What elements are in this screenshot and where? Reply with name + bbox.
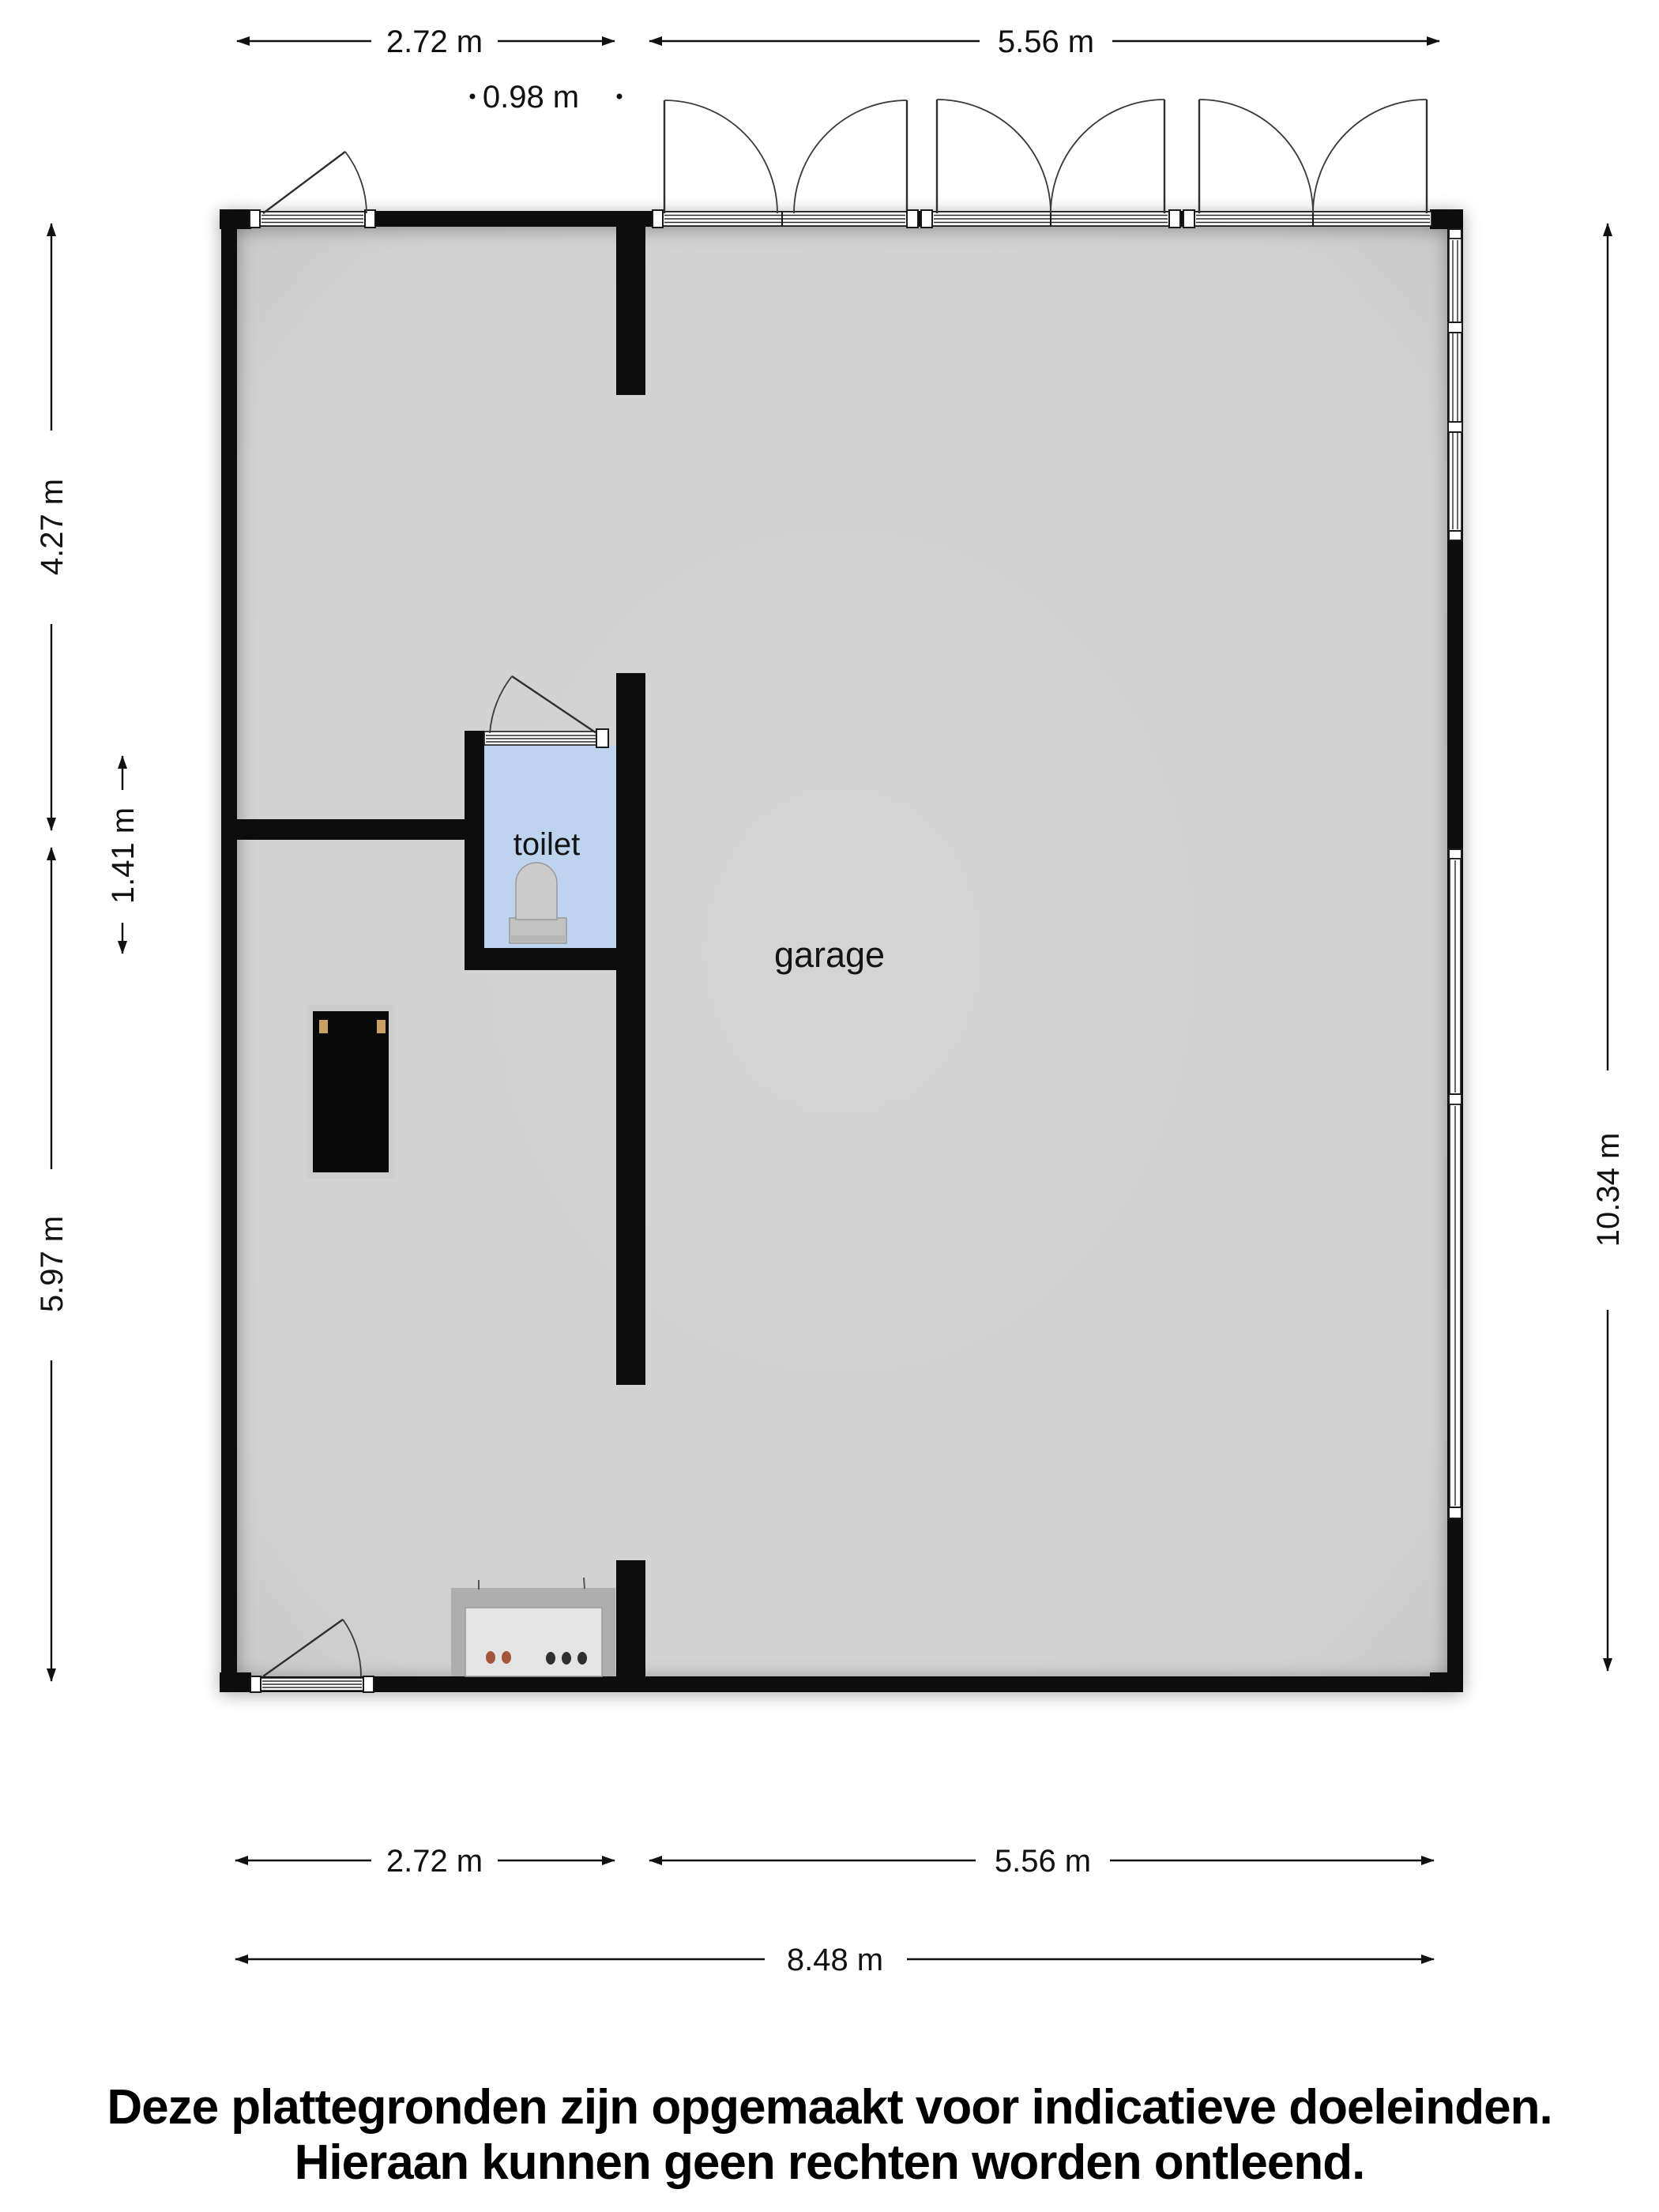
- wall-bottom: [221, 1676, 1461, 1692]
- door-post: [250, 210, 260, 228]
- left-partition-wall: [234, 819, 486, 840]
- dimension-bottom-right: 5.56 m: [649, 1844, 1434, 1879]
- window-post: [1449, 531, 1461, 540]
- room-label-toilet: toilet: [513, 827, 581, 862]
- mid-wall-upper-segment: [616, 227, 645, 395]
- dim-left-upper-label: 4.27 m: [35, 479, 70, 575]
- disclaimer: Deze plattegronden zijn opgemaakt voor i…: [107, 2080, 1552, 2190]
- dim-left-mid-label: 1.41 m: [106, 807, 141, 904]
- toilet-door-post: [596, 729, 608, 747]
- counter-tick: [584, 1578, 585, 1589]
- dim-top-right-label: 5.56 m: [998, 24, 1094, 59]
- window-transom: [1449, 1094, 1461, 1104]
- dimension-left-mid: 1.41 m: [106, 756, 141, 954]
- window-narrow-upper: [1450, 859, 1461, 1094]
- cabinet-body: [313, 1011, 389, 1172]
- door-swing-arc: [937, 100, 1051, 213]
- door-swing-arc: [1313, 100, 1427, 213]
- window-post: [1449, 229, 1461, 239]
- counter-knob-warm: [486, 1651, 495, 1664]
- counter-door-panel: [465, 1608, 602, 1676]
- counter-knob-dark: [546, 1652, 555, 1665]
- door-swing-arc: [1051, 100, 1164, 213]
- cabinet: [307, 1005, 395, 1179]
- counter-knob-dark: [577, 1652, 587, 1665]
- corner-top-right: [1430, 209, 1463, 229]
- door-post: [653, 210, 663, 228]
- door-post: [907, 210, 918, 228]
- counter-unit: [451, 1578, 615, 1676]
- toilet-bottom-wall: [465, 948, 645, 970]
- dim-bottom-left-label: 2.72 m: [386, 1844, 483, 1879]
- dim-top-small-label: 0.98 m: [483, 80, 579, 115]
- window-transom: [1448, 322, 1462, 333]
- corner-top-left: [220, 209, 251, 229]
- counter-knob-warm: [502, 1651, 511, 1664]
- dimension-left-upper: 4.27 m: [35, 224, 70, 830]
- cabinet-handle: [319, 1020, 328, 1033]
- dim-top-left-label: 2.72 m: [386, 24, 483, 59]
- toilet-left-wall: [465, 731, 484, 970]
- door-swing-arc: [664, 100, 777, 213]
- dimension-bottom-left: 2.72 m: [235, 1844, 615, 1879]
- entry-door-swing-arc: [345, 152, 367, 213]
- garage-door-3: [1169, 100, 1431, 228]
- mid-wall-lower-segment: [616, 1560, 645, 1679]
- garage-door-2: [907, 100, 1169, 228]
- dim-dot: [617, 94, 623, 100]
- door-post: [1169, 210, 1180, 228]
- window-large: [1448, 239, 1462, 531]
- cabinet-handle: [377, 1020, 386, 1033]
- window-transom: [1448, 422, 1462, 432]
- toilet-bowl: [516, 863, 557, 920]
- dimension-top-left: 2.72 m: [237, 24, 615, 59]
- dim-right-label: 10.34 m: [1591, 1133, 1626, 1247]
- floorplan-canvas: toilet: [0, 0, 1659, 2212]
- toilet-base-shadow: [511, 935, 565, 942]
- entry-door-leaf: [263, 152, 345, 213]
- dim-left-lower-label: 5.97 m: [35, 1216, 70, 1312]
- dim-dot: [470, 94, 476, 100]
- door-post: [921, 210, 932, 228]
- door-post: [250, 1676, 261, 1692]
- dimension-top-right: 5.56 m: [649, 24, 1439, 59]
- corner-bottom-right: [1430, 1672, 1463, 1692]
- window-post: [1449, 849, 1461, 859]
- window-narrow-lower: [1450, 1104, 1461, 1507]
- room-label-garage: garage: [774, 935, 885, 975]
- window-post: [1449, 1507, 1461, 1518]
- wall-left: [221, 211, 237, 1692]
- door-swing-arc: [1199, 100, 1313, 213]
- dimension-right-total: 10.34 m: [1591, 224, 1626, 1671]
- counter-knob-dark: [562, 1652, 571, 1665]
- corner-bottom-left: [220, 1672, 251, 1692]
- top-wall-openings: [250, 100, 1431, 228]
- window-frame: [1449, 239, 1461, 531]
- garage-door-1: [653, 100, 907, 228]
- right-wall-windows: [1448, 229, 1462, 1518]
- dim-bottom-total-label: 8.48 m: [787, 1943, 883, 1977]
- door-post: [363, 1676, 374, 1692]
- dim-bottom-right-label: 5.56 m: [995, 1844, 1091, 1879]
- door-post: [1183, 210, 1194, 228]
- disclaimer-line-2: Hieraan kunnen geen rechten worden ontle…: [295, 2135, 1365, 2190]
- dimension-top-small: 0.98 m: [470, 80, 623, 115]
- dimension-left-lower: 5.97 m: [35, 848, 70, 1681]
- door-swing-arc: [794, 100, 907, 213]
- mid-wall-center-segment: [616, 673, 645, 1385]
- disclaimer-line-1: Deze plattegronden zijn opgemaakt voor i…: [107, 2080, 1552, 2135]
- dimension-bottom-total: 8.48 m: [235, 1943, 1434, 1977]
